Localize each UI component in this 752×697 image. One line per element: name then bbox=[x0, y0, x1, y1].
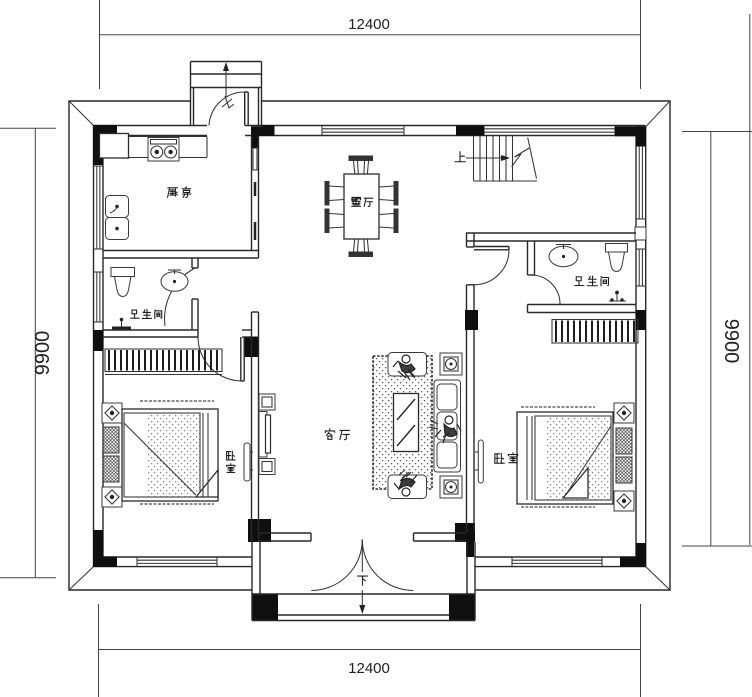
svg-text:12400: 12400 bbox=[348, 16, 390, 33]
svg-text:9900: 9900 bbox=[32, 331, 54, 376]
svg-text:12400: 12400 bbox=[348, 660, 390, 677]
svg-text:9900: 9900 bbox=[720, 319, 742, 364]
